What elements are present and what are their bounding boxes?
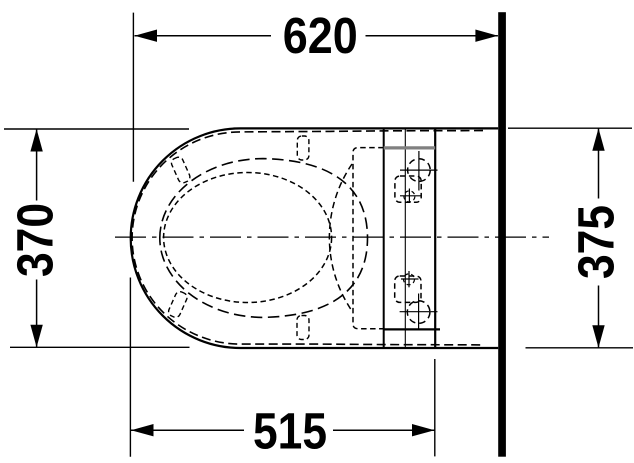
svg-text:375: 375 [568,205,625,279]
svg-text:515: 515 [253,402,327,459]
svg-text:620: 620 [283,7,358,64]
svg-text:370: 370 [7,203,64,277]
